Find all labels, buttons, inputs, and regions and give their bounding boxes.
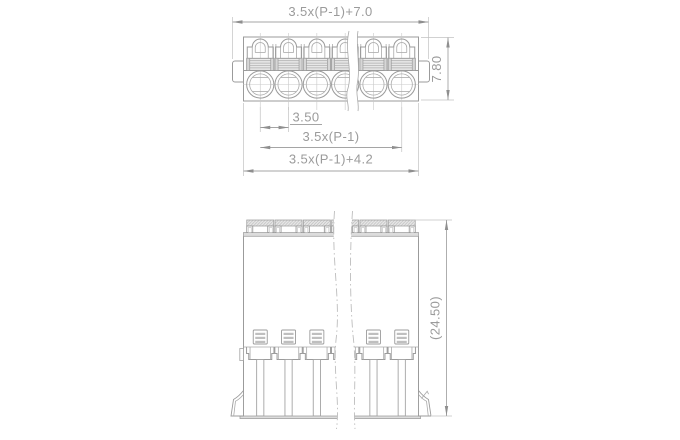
front-view: [231, 211, 431, 429]
dim-pitch-span-label: 3.5x(P-1): [302, 129, 359, 144]
terminal-position: [303, 220, 330, 416]
right-tab: [419, 61, 430, 82]
front-view-positions: [247, 220, 416, 416]
dim-top-overall-label: 3.5x(P-1)+7.0: [288, 4, 372, 19]
top-view: [233, 31, 430, 111]
dim-front-height-label: (24.50): [428, 296, 443, 340]
dim-pitch-label: 3.50: [293, 110, 320, 125]
terminal-position: [275, 220, 302, 416]
terminal-position: [247, 220, 274, 416]
left-claw: [231, 391, 244, 417]
dim-body-width-label: 3.5x(P-1)+4.2: [289, 152, 373, 167]
front-bottom-edge: [240, 416, 421, 419]
right-claw: [419, 391, 432, 417]
terminal-position: [388, 220, 415, 416]
front-view-break-line: [334, 211, 355, 429]
terminal-block-drawing: 3.5x(P-1)+7.0 7.80 3.50 3.5x(P-1) 3.5x(P…: [0, 0, 680, 440]
left-tab: [233, 61, 244, 82]
technical-drawing-canvas: 3.5x(P-1)+7.0 7.80 3.50 3.5x(P-1) 3.5x(P…: [0, 0, 680, 440]
front-view-dimensions: (24.50): [410, 220, 452, 416]
terminal-position: [360, 220, 387, 416]
dim-top-height-label: 7.80: [429, 56, 444, 83]
left-step: [240, 349, 244, 361]
front-top-edge: [244, 233, 419, 237]
